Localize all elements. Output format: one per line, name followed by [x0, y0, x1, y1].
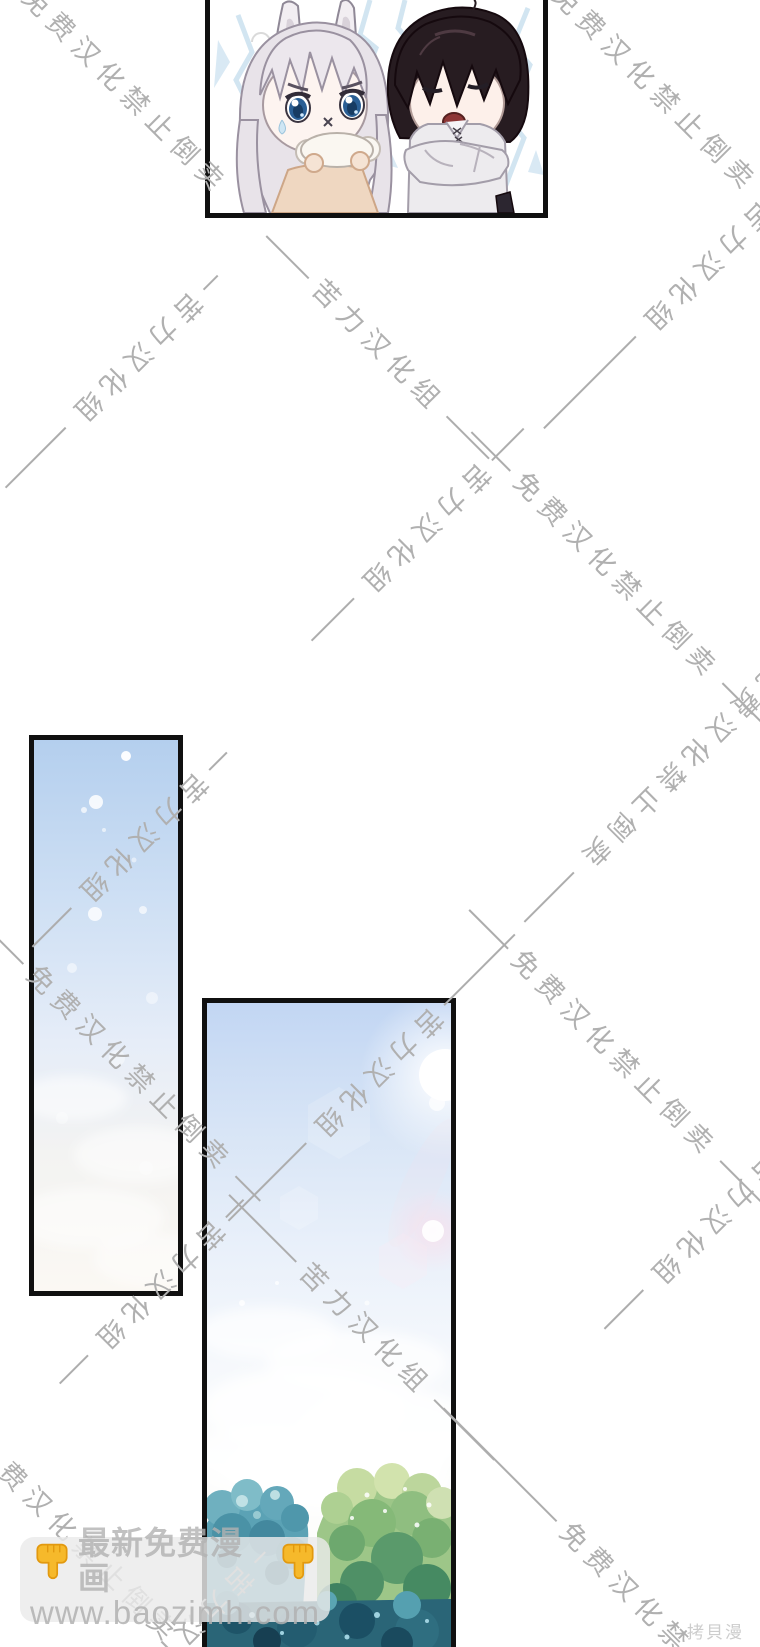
watermark-line	[544, 336, 637, 429]
banner-url[interactable]: www.baozimh.com	[20, 1596, 330, 1631]
watermark-line	[59, 1355, 89, 1385]
watermark-text: 苦力汉化组	[634, 196, 760, 339]
watermark-line	[446, 415, 490, 459]
pointing-down-finger-icon	[282, 1542, 314, 1580]
chibi-characters-art	[210, 0, 543, 213]
watermark-text: 免费汉化禁止倒卖	[572, 658, 760, 875]
watermark-line	[311, 598, 355, 642]
watermark-text: 苦力汉化组	[352, 458, 495, 601]
watermark-line	[604, 1290, 644, 1330]
corner-watermark: 拷貝漫畫	[687, 1618, 760, 1647]
watermark-text: 苦力汉化组	[64, 288, 207, 431]
watermark-text: 苦力汉化组	[641, 1150, 760, 1293]
watermark-line	[471, 431, 511, 471]
watermark-line	[469, 909, 509, 949]
watermark-text: 免费汉化禁止倒卖	[16, 0, 233, 201]
watermark-line	[492, 428, 525, 461]
site-banner[interactable]: 最新免费漫画 www.baozimh.com	[20, 1537, 330, 1622]
watermark-text: 免费汉化禁止倒卖	[506, 946, 723, 1163]
watermark-text: 免费汉化禁止倒卖	[546, 0, 760, 199]
girl-right-eye	[340, 91, 364, 119]
watermark-line	[203, 275, 219, 291]
banner-title-row: 最新免费漫画	[20, 1526, 330, 1596]
watermark-line	[209, 752, 228, 771]
manga-page: 免费汉化禁止倒卖免费汉化禁止倒卖苦力汉化组苦力汉化组苦力汉化组免费汉化禁止倒卖苦…	[0, 0, 760, 1647]
sky-gradient-art	[34, 740, 178, 1291]
watermark-text: 苦力汉化组	[307, 276, 450, 419]
watermark-line	[444, 934, 516, 1006]
comic-panel-characters	[205, 0, 548, 218]
pointing-down-finger-icon	[36, 1542, 68, 1580]
comic-panel-sky-left	[29, 735, 183, 1296]
banner-title: 最新免费漫画	[78, 1526, 272, 1596]
watermark-line	[5, 427, 67, 489]
watermark-line	[720, 1160, 760, 1207]
watermark-line	[524, 872, 575, 923]
rabbit-girl	[237, 0, 392, 213]
watermark-line	[0, 935, 24, 965]
watermark-text: 免费汉化禁止倒卖	[508, 468, 725, 685]
watermark-line	[266, 235, 310, 279]
watermark-line	[722, 682, 760, 733]
watermark-line	[443, 1407, 558, 1522]
crossed-arms-boy	[388, 0, 529, 213]
girl-left-eye	[286, 94, 310, 122]
